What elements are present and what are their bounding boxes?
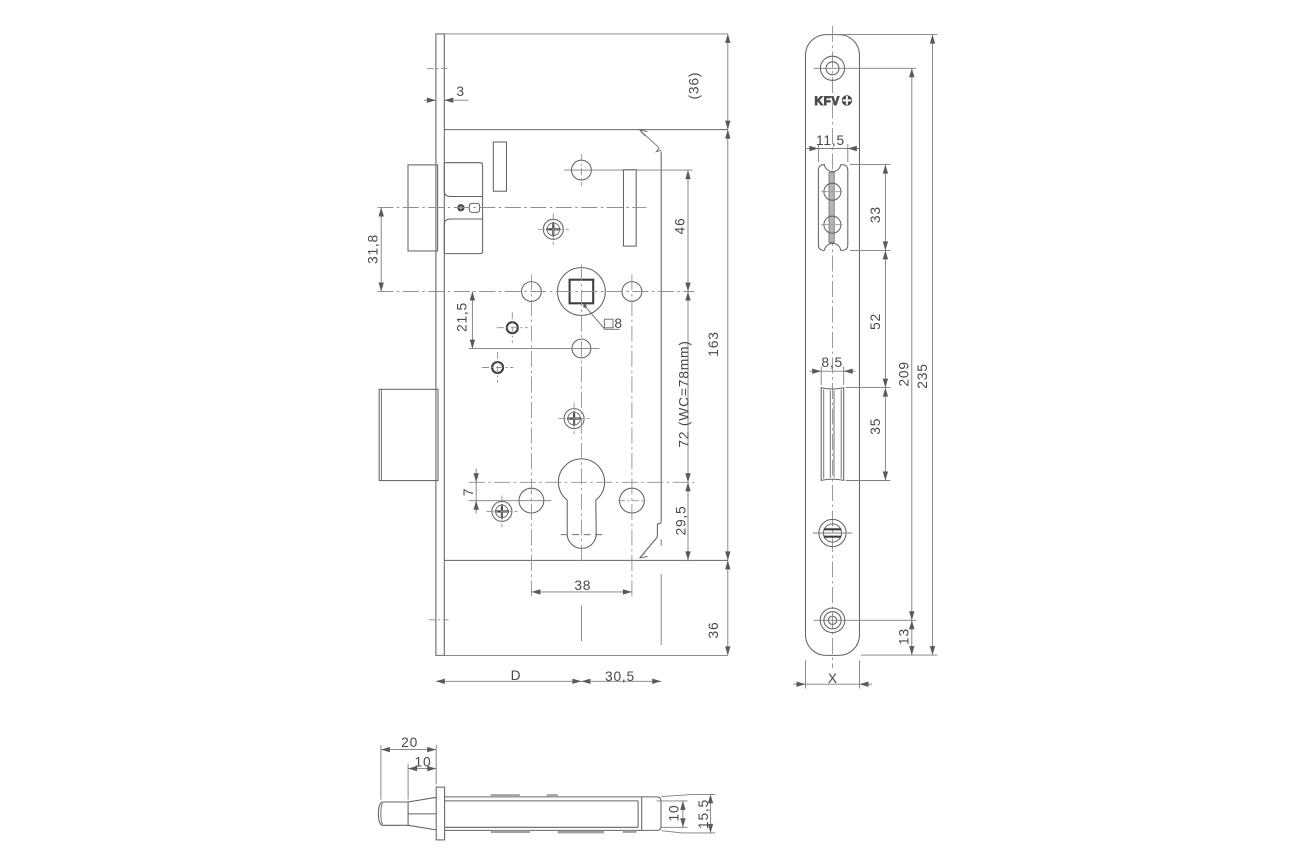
- svg-text:35: 35: [868, 418, 883, 435]
- svg-text:33: 33: [868, 206, 883, 223]
- svg-text:13: 13: [896, 628, 911, 645]
- svg-text:36: 36: [706, 622, 721, 639]
- svg-text:21,5: 21,5: [455, 302, 470, 332]
- svg-text:8,5: 8,5: [821, 355, 843, 370]
- svg-text:8: 8: [614, 316, 622, 331]
- svg-text:29,5: 29,5: [673, 505, 688, 535]
- svg-text:235: 235: [915, 363, 930, 388]
- svg-text:10: 10: [415, 754, 432, 769]
- svg-text:X: X: [828, 671, 838, 686]
- svg-text:10: 10: [667, 805, 682, 822]
- svg-text:15,5: 15,5: [696, 799, 711, 829]
- svg-text:72 (WC=78mm): 72 (WC=78mm): [676, 340, 691, 447]
- svg-text:20: 20: [401, 735, 418, 750]
- svg-text:209: 209: [897, 361, 912, 386]
- svg-text:163: 163: [706, 331, 721, 356]
- svg-text:30,5: 30,5: [605, 669, 635, 684]
- svg-text:46: 46: [673, 218, 688, 235]
- svg-text:7: 7: [461, 488, 476, 496]
- svg-text:KFV: KFV: [815, 94, 840, 108]
- svg-text:D: D: [511, 668, 522, 683]
- svg-text:11,5: 11,5: [816, 133, 845, 148]
- svg-text:38: 38: [574, 578, 591, 593]
- svg-text:(36): (36): [687, 72, 702, 100]
- svg-text:31,8: 31,8: [365, 234, 380, 264]
- svg-text:52: 52: [868, 313, 883, 330]
- svg-text:3: 3: [456, 84, 464, 99]
